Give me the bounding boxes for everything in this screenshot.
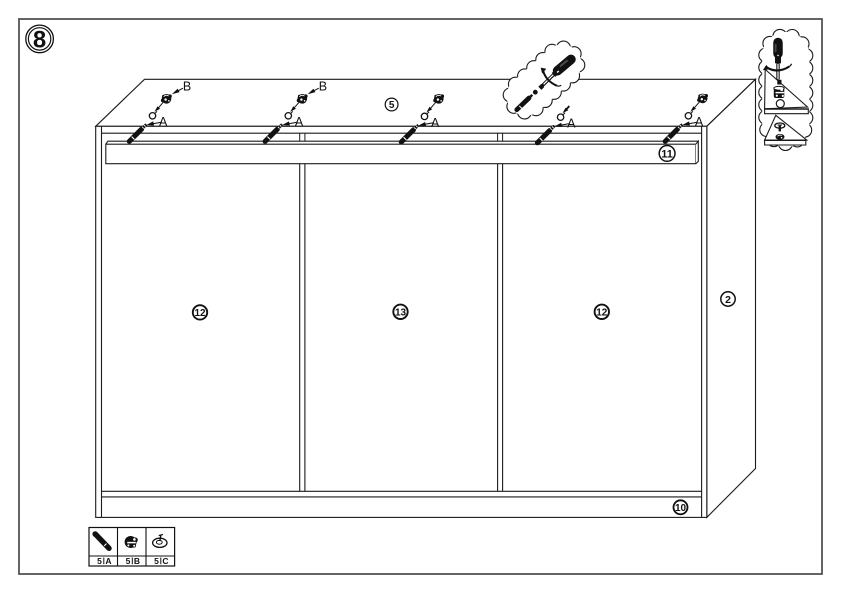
svg-text:12: 12 [194, 308, 206, 319]
svg-text:C: C [162, 556, 168, 566]
svg-text:10: 10 [675, 503, 687, 514]
svg-text:8: 8 [33, 26, 46, 53]
svg-text:11: 11 [661, 149, 673, 161]
svg-text:13: 13 [395, 308, 407, 319]
svg-text:2: 2 [725, 294, 731, 306]
svg-text:5: 5 [389, 100, 395, 111]
svg-text:12: 12 [596, 308, 608, 319]
svg-text:5: 5 [97, 556, 102, 566]
svg-text:5: 5 [154, 556, 159, 566]
svg-text:B: B [134, 556, 140, 566]
svg-text:A: A [105, 556, 111, 566]
svg-text:5: 5 [126, 556, 131, 566]
